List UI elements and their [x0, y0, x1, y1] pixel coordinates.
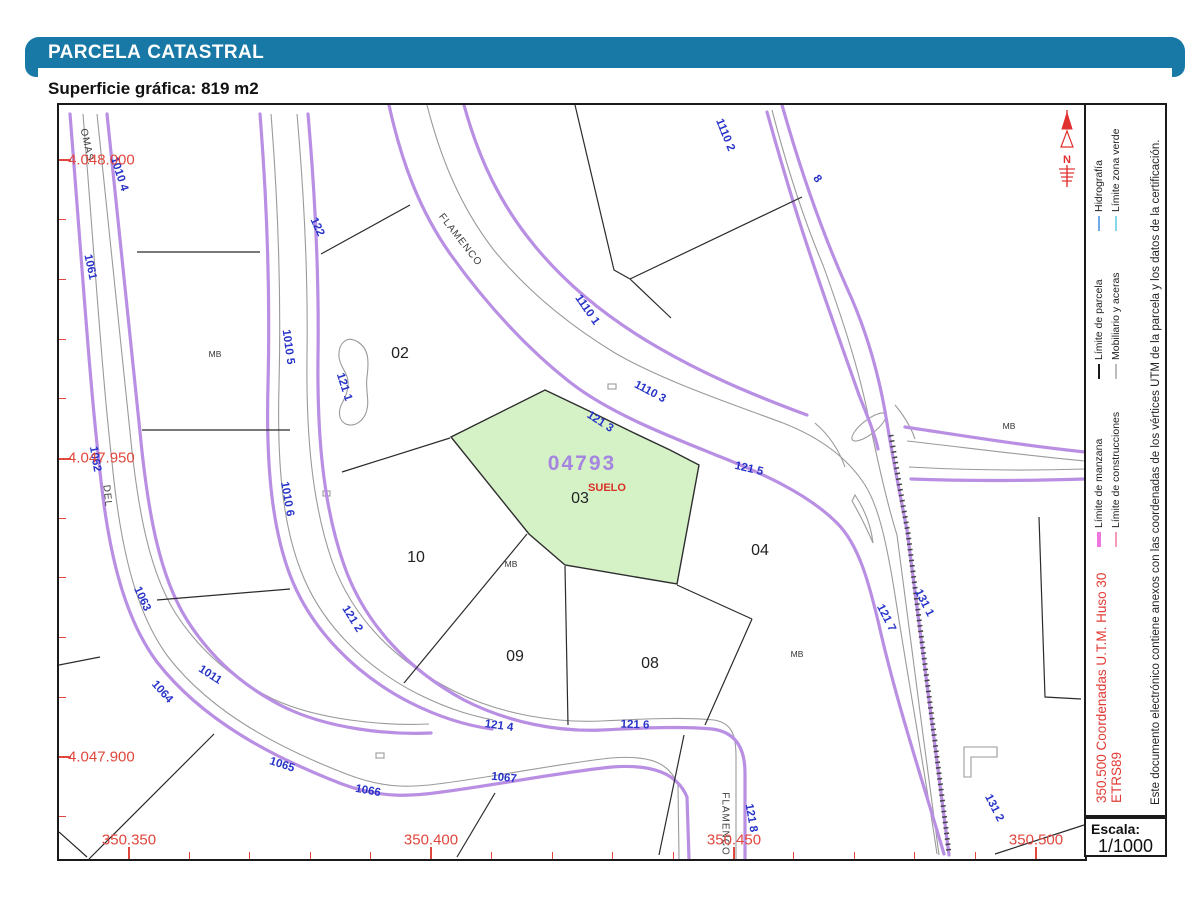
legend-item: Límite de manzana [1093, 379, 1105, 547]
parcel-number-label: 04 [751, 542, 769, 560]
grid-tick [552, 852, 553, 859]
grid-tick [914, 852, 915, 859]
grid-label-easting: 350.350 [102, 832, 156, 849]
map-label-blue: 121 7 [874, 602, 898, 633]
parcel-number-label: 08 [641, 655, 659, 673]
parcel-number-label: 10 [407, 549, 425, 567]
construction-label: MB [1003, 421, 1016, 431]
map-label-blue: 121 3 [585, 409, 616, 435]
map-label-blue: 1010 5 [280, 329, 297, 366]
legend-swatch-icon [1097, 532, 1101, 547]
grid-label-northing: 4.047.900 [68, 749, 135, 766]
grid-tick [310, 852, 311, 859]
grid-tick [59, 219, 66, 220]
grid-tick [59, 458, 71, 460]
map-label-layer: 1110 281110 11110 3121 3121 5121 1122101… [59, 105, 1085, 859]
surface-text: Superficie gráfica: 819 m2 [48, 79, 259, 99]
grid-tick [370, 852, 371, 859]
map-label-blue: 1061 [81, 253, 98, 281]
map-label-blue: 1110 3 [632, 379, 668, 406]
surface-label: Superficie gráfica: [48, 79, 196, 98]
legend-item: Hidrografía [1093, 111, 1105, 231]
map-label-blue: 121 6 [620, 719, 649, 732]
header-tail-left [25, 66, 38, 77]
grid-label-easting: 350.400 [404, 832, 458, 849]
legend-swatch-icon [1098, 216, 1100, 231]
legend-swatch-icon [1115, 364, 1117, 379]
map-label-blue: 121 2 [339, 604, 364, 635]
legend-row: Límite de construccionesMobiliario y ace… [1107, 111, 1124, 547]
legend-item-label: Límite de construcciones [1110, 412, 1122, 528]
construction-label: MB [505, 559, 518, 569]
grid-label-northing: 4.048.000 [68, 152, 135, 169]
map-label-blue: 1064 [149, 678, 175, 705]
legend-item: Mobiliario y aceras [1110, 231, 1122, 379]
grid-tick [59, 577, 66, 578]
street-name-label: FLAMENCO [436, 212, 484, 269]
map-label-blue: 1010 6 [278, 481, 296, 518]
legend-items: Límite de manzanaLímite de parcelaHidrog… [1090, 111, 1124, 547]
page: PARCELACATASTRAL Superficie gráfica: 819… [0, 0, 1200, 917]
utm-coordinates-text: 350.500 Coordenadas U.T.M. Huso 30 ETRS8… [1094, 551, 1124, 803]
grid-tick [59, 637, 66, 638]
map-label-blue: 121 5 [734, 460, 765, 478]
grid-tick [59, 816, 66, 817]
grid-label-easting: 350.450 [707, 832, 761, 849]
map-label-blue: 1063 [131, 585, 153, 613]
legend-item-label: Límite zona verde [1110, 129, 1122, 212]
page-title: PARCELACATASTRAL [48, 42, 264, 64]
legend-item: Límite de parcela [1093, 231, 1105, 379]
legend-item-label: Límite de manzana [1093, 439, 1105, 528]
legend-item-label: Hidrografía [1093, 160, 1105, 212]
grid-tick [59, 279, 66, 280]
grid-label-northing: 4.047.950 [68, 450, 135, 467]
grid-label-easting: 350.500 [1009, 832, 1063, 849]
grid-tick [491, 852, 492, 859]
construction-label: MB [791, 649, 804, 659]
construction-label: MB [209, 349, 222, 359]
grid-tick [975, 852, 976, 859]
grid-tick [793, 852, 794, 859]
grid-tick [733, 847, 735, 859]
map-label-blue: 8 [810, 173, 824, 185]
legend-row: Límite de manzanaLímite de parcelaHidrog… [1090, 111, 1107, 547]
parcel-number-label: 09 [506, 648, 524, 666]
grid-tick [249, 852, 250, 859]
header-tail-right [1172, 66, 1185, 77]
map-label-blue: 1067 [491, 771, 518, 786]
parcel-number-label: 02 [391, 345, 409, 363]
grid-tick [59, 339, 66, 340]
legend-swatch-icon [1115, 216, 1117, 231]
header-bar: PARCELACATASTRAL [25, 37, 1185, 68]
grid-tick [59, 697, 66, 698]
highlighted-parcel-code: 04793 [548, 452, 616, 476]
scale-box: Escala: 1/1000 [1084, 817, 1167, 857]
legend-item-label: Límite de parcela [1093, 279, 1105, 360]
grid-tick [612, 852, 613, 859]
map-label-blue: 121 4 [484, 718, 514, 734]
page-title-secondary: CATASTRAL [147, 42, 264, 63]
map-label-blue: 1011 [196, 663, 223, 687]
surface-value: 819 m2 [201, 79, 259, 98]
scale-value: 1/1000 [1086, 836, 1165, 857]
map-label-blue: 131 1 [912, 587, 936, 618]
certification-note: Este documento electrónico contiene anex… [1150, 105, 1162, 805]
grid-tick [430, 847, 432, 859]
map-label-blue: 122 [308, 216, 327, 238]
grid-tick [59, 518, 66, 519]
map-label-blue: 121 1 [334, 371, 354, 402]
legend-content: 350.500 Coordenadas U.T.M. Huso 30 ETRS8… [1086, 103, 1165, 815]
grid-tick [854, 852, 855, 859]
map-label-blue: 121 8 [743, 803, 760, 833]
legend-item: Límite de construcciones [1110, 379, 1122, 547]
grid-tick [59, 756, 71, 758]
legend-swatch-icon [1098, 364, 1100, 379]
highlighted-parcel-number: 03 [571, 490, 589, 508]
map-label-blue: 131 2 [982, 792, 1006, 823]
grid-tick [59, 159, 71, 161]
grid-tick [189, 852, 190, 859]
grid-tick [1035, 847, 1037, 859]
map-label-blue: 1110 2 [713, 117, 737, 153]
page-title-primary: PARCELA [48, 42, 141, 63]
legend-item-label: Mobiliario y aceras [1110, 272, 1122, 360]
grid-tick [673, 852, 674, 859]
land-use-label: SUELO [588, 482, 626, 494]
grid-tick [59, 398, 66, 399]
legend-swatch-icon [1115, 532, 1117, 547]
legend-item: Límite zona verde [1110, 111, 1122, 231]
map-label-blue: 1065 [268, 755, 296, 774]
map-label-blue: 1066 [354, 783, 381, 799]
street-name-label: DEL [100, 484, 113, 507]
scale-label: Escala: [1091, 821, 1140, 837]
grid-tick [128, 847, 130, 859]
map-label-blue: 1110 1 [572, 293, 601, 328]
cadastral-map: N 1110 281110 11110 3121 3121 5121 11221… [57, 103, 1087, 861]
